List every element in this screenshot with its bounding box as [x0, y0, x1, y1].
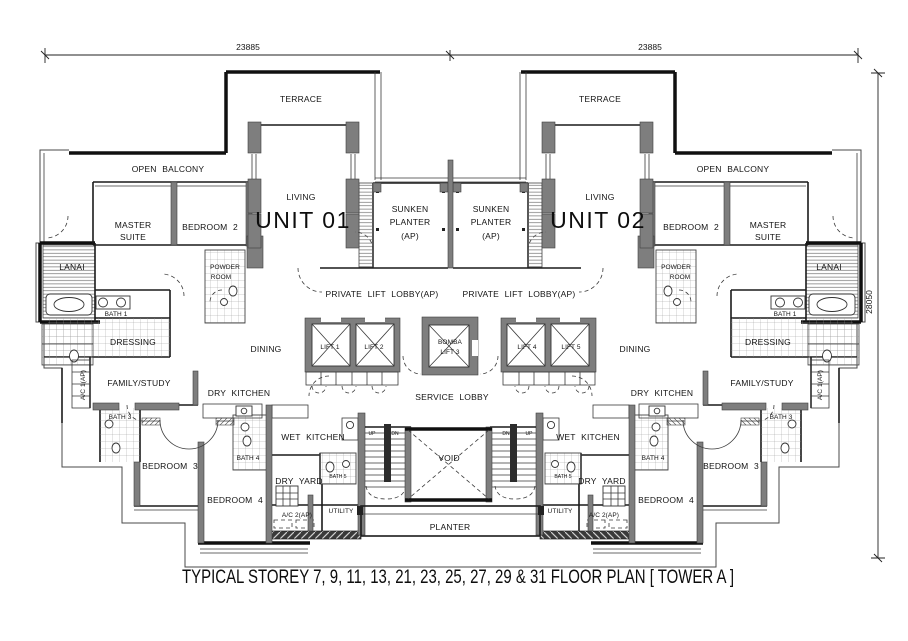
room-label-family-u1: FAMILY/STUDY: [107, 378, 170, 388]
room-label-ac1-u1: A/C 1(AP): [80, 370, 87, 400]
room-label-utility-u2: UTILITY: [548, 508, 573, 515]
room-label-lanai-u2: LANAI: [816, 262, 842, 272]
room-label-terrace-u2: TERRACE: [579, 94, 621, 104]
plan-caption: TYPICAL STOREY 7, 9, 11, 13, 21, 23, 25,…: [182, 566, 734, 588]
room-label-powder1-u2: POWDER: [661, 264, 691, 271]
room-label-sunken3-u2: (AP): [482, 231, 500, 241]
floor-plan-page: 23885 23885 28050 TERRACE OPEN BALCONY L…: [0, 0, 908, 641]
room-label-living-u1: LIVING: [286, 192, 315, 202]
room-label-dining-u1: DINING: [251, 344, 282, 354]
room-label-sunken1-u2: SUNKEN: [473, 204, 510, 214]
room-label-powder1-u1: POWDER: [210, 264, 240, 271]
room-label-bedroom4-u2: BEDROOM 4: [638, 495, 694, 505]
room-label-open-balcony-u2: OPEN BALCONY: [697, 164, 770, 174]
room-label-planter: PLANTER: [430, 522, 471, 532]
room-label-dry-yard-u2: DRY YARD: [578, 476, 625, 486]
lift2-label: LIFT 2: [364, 344, 384, 351]
floor-plan: 23885 23885 28050 TERRACE OPEN BALCONY L…: [0, 0, 908, 641]
room-label-bedroom2-u2: BEDROOM 2: [663, 222, 719, 232]
room-label-bedroom3-u1: BEDROOM 3: [142, 461, 198, 471]
room-label-ac2-u1: A/C 2(AP): [282, 512, 312, 519]
room-label-bedroom2-u1: BEDROOM 2: [182, 222, 238, 232]
room-label-bath3-u2: BATH 3: [770, 414, 793, 421]
stair-label-up-left: UP: [369, 431, 377, 437]
dim-height-right: 28050: [864, 290, 874, 314]
room-label-void: VOID: [438, 453, 460, 463]
unit1-title: UNIT 01: [255, 207, 351, 233]
room-label-bedroom3-u2: BEDROOM 3: [703, 461, 759, 471]
room-label-master-u1: MASTER: [115, 220, 152, 230]
room-label-suite-u1: SUITE: [120, 232, 146, 242]
dim-width-right: 23885: [638, 42, 662, 52]
room-label-master-u2: MASTER: [750, 220, 787, 230]
room-label-dry-yard-u1: DRY YARD: [275, 476, 322, 486]
room-label-bath3-u1: BATH 3: [109, 414, 132, 421]
room-label-wet-kitchen-u2: WET KITCHEN: [556, 432, 620, 442]
lift1-label: LIFT 1: [320, 344, 340, 351]
room-label-family-u2: FAMILY/STUDY: [730, 378, 793, 388]
bomba-lift-label2: LIFT 3: [440, 349, 460, 356]
room-label-ac1-u2: A/C 1(AP): [817, 370, 824, 400]
room-label-sunken1-u1: SUNKEN: [392, 204, 429, 214]
room-label-ac2-u2: A/C 2(AP): [589, 512, 619, 519]
unit2-title: UNIT 02: [550, 207, 646, 233]
room-label-powder2-u1: ROOM: [211, 274, 232, 281]
room-label-dry-kitchen-u1: DRY KITCHEN: [208, 388, 271, 398]
room-label-bath4-u1: BATH 4: [237, 455, 260, 462]
dim-width-left: 23885: [236, 42, 260, 52]
room-label-bath4-u2: BATH 4: [642, 455, 665, 462]
room-label-lift-lobby-u2: PRIVATE LIFT LOBBY(AP): [463, 289, 576, 299]
room-label-dressing-u1: DRESSING: [110, 337, 156, 347]
stair-label-up-right: UP: [526, 431, 534, 437]
room-label-dining-u2: DINING: [620, 344, 651, 354]
stair-label-dn-left: DN: [391, 431, 399, 437]
room-label-dry-kitchen-u2: DRY KITCHEN: [631, 388, 694, 398]
room-label-bath1-u2: BATH 1: [774, 311, 797, 318]
room-label-bath1-u1: BATH 1: [105, 311, 128, 318]
room-label-service-lobby: SERVICE LOBBY: [415, 392, 489, 402]
room-label-living-u2: LIVING: [585, 192, 614, 202]
room-label-dressing-u2: DRESSING: [745, 337, 791, 347]
room-label-bath5-u1: BATH 5: [329, 474, 346, 480]
room-label-utility-u1: UTILITY: [329, 508, 354, 515]
stair-label-dn-right: DN: [502, 431, 510, 437]
room-label-sunken3-u1: (AP): [401, 231, 419, 241]
room-label-sunken2-u1: PLANTER: [390, 217, 431, 227]
room-label-terrace-u1: TERRACE: [280, 94, 322, 104]
room-label-lift-lobby-u1: PRIVATE LIFT LOBBY(AP): [326, 289, 439, 299]
lift4-label: LIFT 4: [517, 344, 537, 351]
room-label-bath5-u2: BATH 5: [554, 474, 571, 480]
bomba-lift-label1: BOMBA: [438, 339, 463, 346]
room-label-open-balcony-u1: OPEN BALCONY: [132, 164, 205, 174]
room-label-suite-u2: SUITE: [755, 232, 781, 242]
room-label-wet-kitchen-u1: WET KITCHEN: [281, 432, 345, 442]
room-label-bedroom4-u1: BEDROOM 4: [207, 495, 263, 505]
room-label-powder2-u2: ROOM: [670, 274, 691, 281]
room-label-sunken2-u2: PLANTER: [471, 217, 512, 227]
lift5-label: LIFT 5: [561, 344, 581, 351]
room-label-lanai-u1: LANAI: [59, 262, 85, 272]
